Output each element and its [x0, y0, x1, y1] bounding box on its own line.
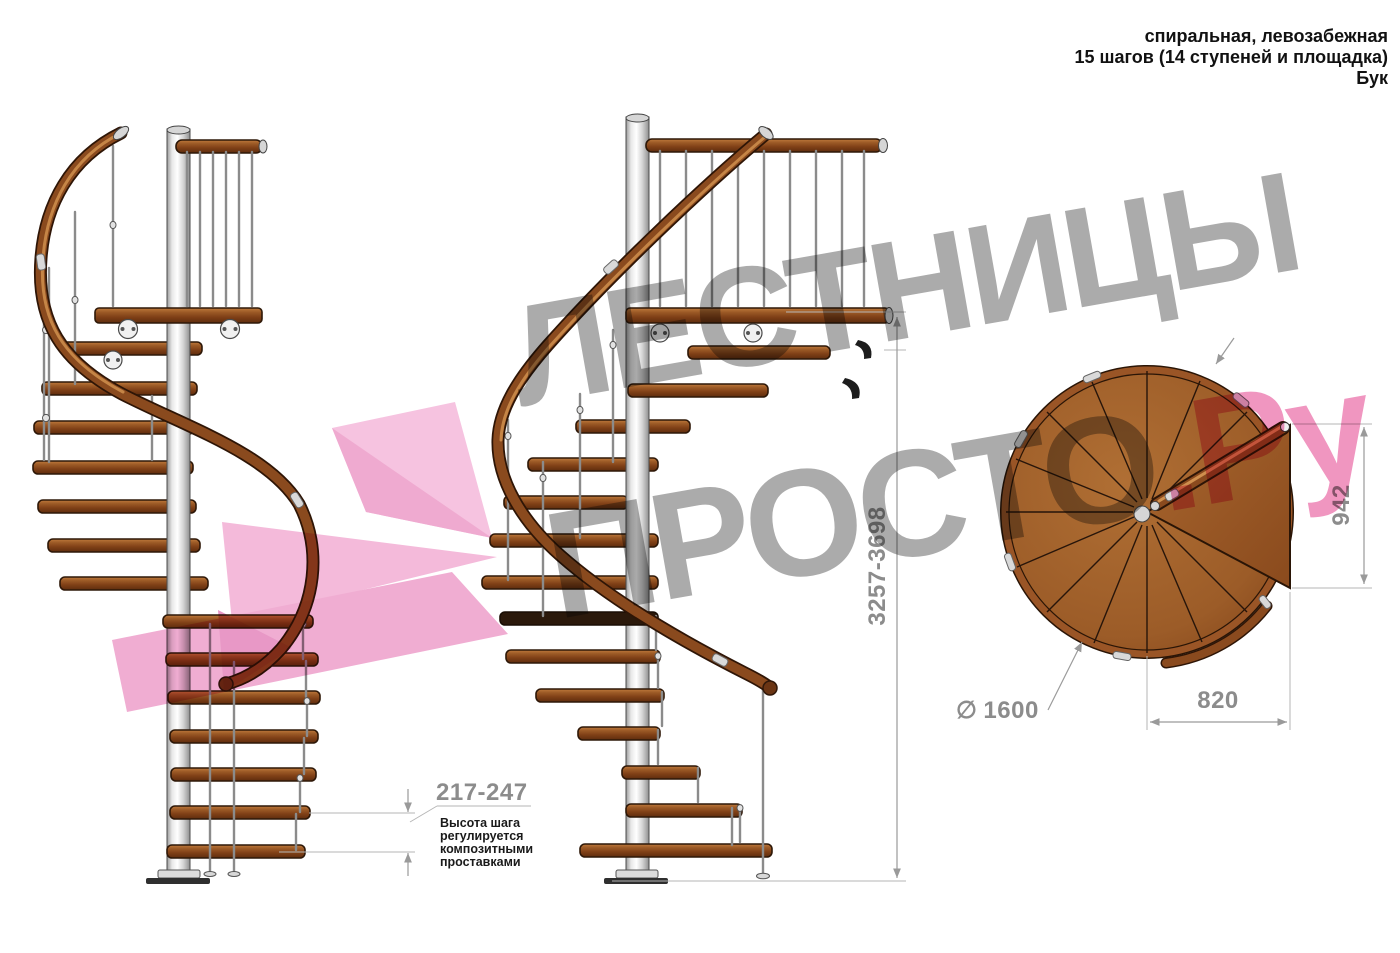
pole-base	[146, 878, 210, 884]
dim-platform-depth: 942	[1328, 484, 1355, 526]
header-steps: 15 шагов (14 ступеней и площадка)	[1075, 47, 1388, 68]
diameter-icon: ∅	[956, 697, 977, 724]
svg-text:проставками: проставками	[440, 855, 521, 869]
connector-plate	[651, 324, 762, 342]
plan-view	[1001, 366, 1293, 707]
center-pole	[626, 117, 649, 875]
landing-platform	[626, 308, 889, 323]
handrail-end-cap	[219, 677, 233, 691]
landing-platform	[95, 308, 262, 323]
svg-text:Высота шага: Высота шага	[440, 816, 521, 830]
annotation-text: Высота шага регулируется композитными пр…	[440, 816, 533, 869]
dim-step-run: 820	[1197, 687, 1239, 714]
left-elevation-view	[33, 124, 320, 884]
plan-leader-arrow	[1216, 338, 1234, 364]
pole-top-cap	[167, 126, 190, 134]
handrail-end-cap	[763, 681, 777, 695]
technical-drawing: 3257-3698 942 820 ∅1600 217-247 Высота ш…	[0, 0, 1400, 953]
header-info: спиральная, левозабежная 15 шагов (14 ст…	[1075, 26, 1388, 89]
drawing-canvas: 3257-3698 942 820 ∅1600 217-247 Высота ш…	[0, 0, 1400, 953]
middle-elevation-view	[482, 114, 893, 884]
svg-text:композитными: композитными	[440, 842, 533, 856]
svg-text:регулируется: регулируется	[440, 829, 523, 843]
dim-step-height: 217-247	[436, 779, 528, 806]
header-material: Бук	[1075, 68, 1388, 89]
header-type: спиральная, левозабежная	[1075, 26, 1388, 47]
pole-top-cap	[626, 114, 649, 122]
landing-handrail-bar	[176, 140, 262, 153]
dim-total-height: 3257-3698	[864, 506, 891, 625]
dim-diameter: ∅1600	[956, 697, 1039, 724]
